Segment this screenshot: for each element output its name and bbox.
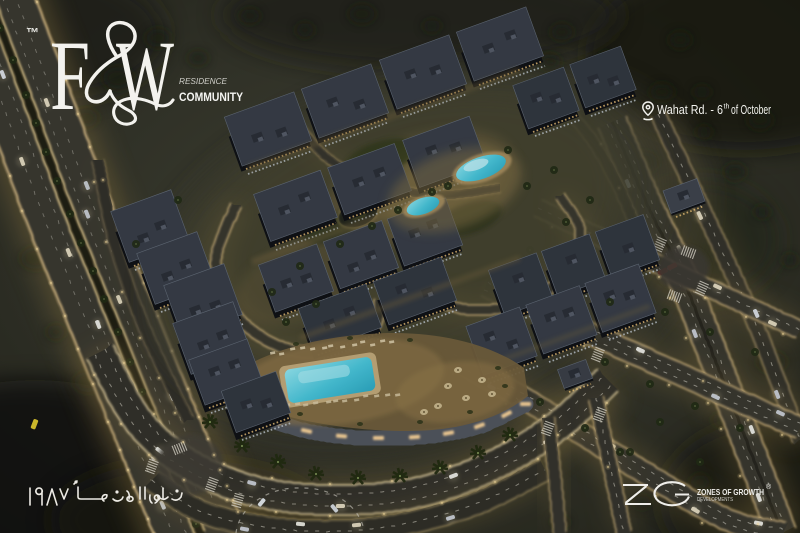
svg-text:th: th <box>724 104 730 111</box>
svg-text:™: ™ <box>26 25 39 40</box>
svg-text:DEVELOPMENTS: DEVELOPMENTS <box>697 497 734 503</box>
svg-text:of October: of October <box>731 103 771 117</box>
svg-text:ZONES OF GROWTH: ZONES OF GROWTH <box>697 488 764 497</box>
svg-text:®: ® <box>766 483 772 491</box>
svg-text:F: F <box>50 20 90 131</box>
svg-text:W: W <box>116 20 174 131</box>
svg-text:Wahat Rd. - 6: Wahat Rd. - 6 <box>657 103 723 117</box>
svg-text:RESIDENCE: RESIDENCE <box>179 76 227 86</box>
svg-text:COMMUNITY: COMMUNITY <box>179 92 243 104</box>
